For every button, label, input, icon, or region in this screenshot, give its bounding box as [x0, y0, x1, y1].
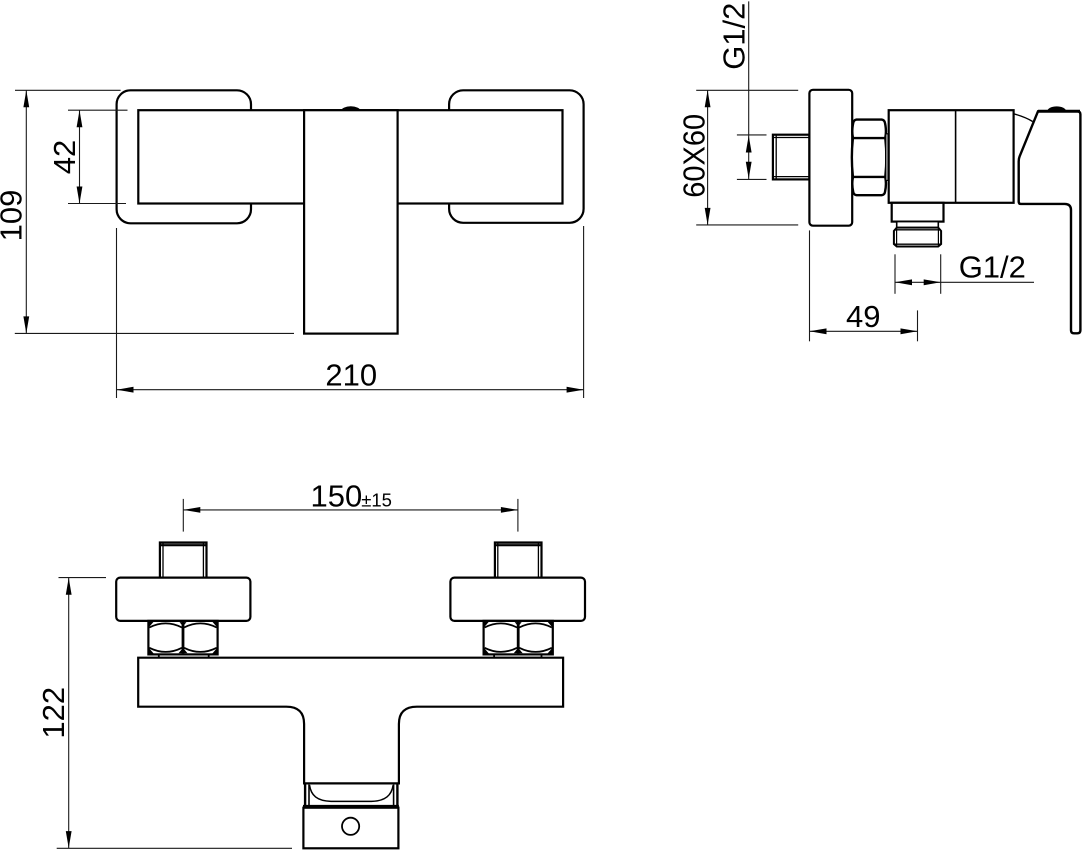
svg-text:±15: ±15	[361, 489, 392, 510]
svg-text:150: 150	[311, 478, 363, 513]
svg-text:122: 122	[36, 687, 71, 739]
svg-text:210: 210	[325, 358, 377, 393]
svg-text:G1/2: G1/2	[717, 3, 752, 70]
svg-text:49: 49	[846, 299, 880, 334]
svg-text:109: 109	[0, 190, 29, 242]
svg-text:60X60: 60X60	[677, 114, 712, 198]
svg-text:42: 42	[47, 140, 82, 174]
svg-text:G1/2: G1/2	[959, 249, 1026, 284]
